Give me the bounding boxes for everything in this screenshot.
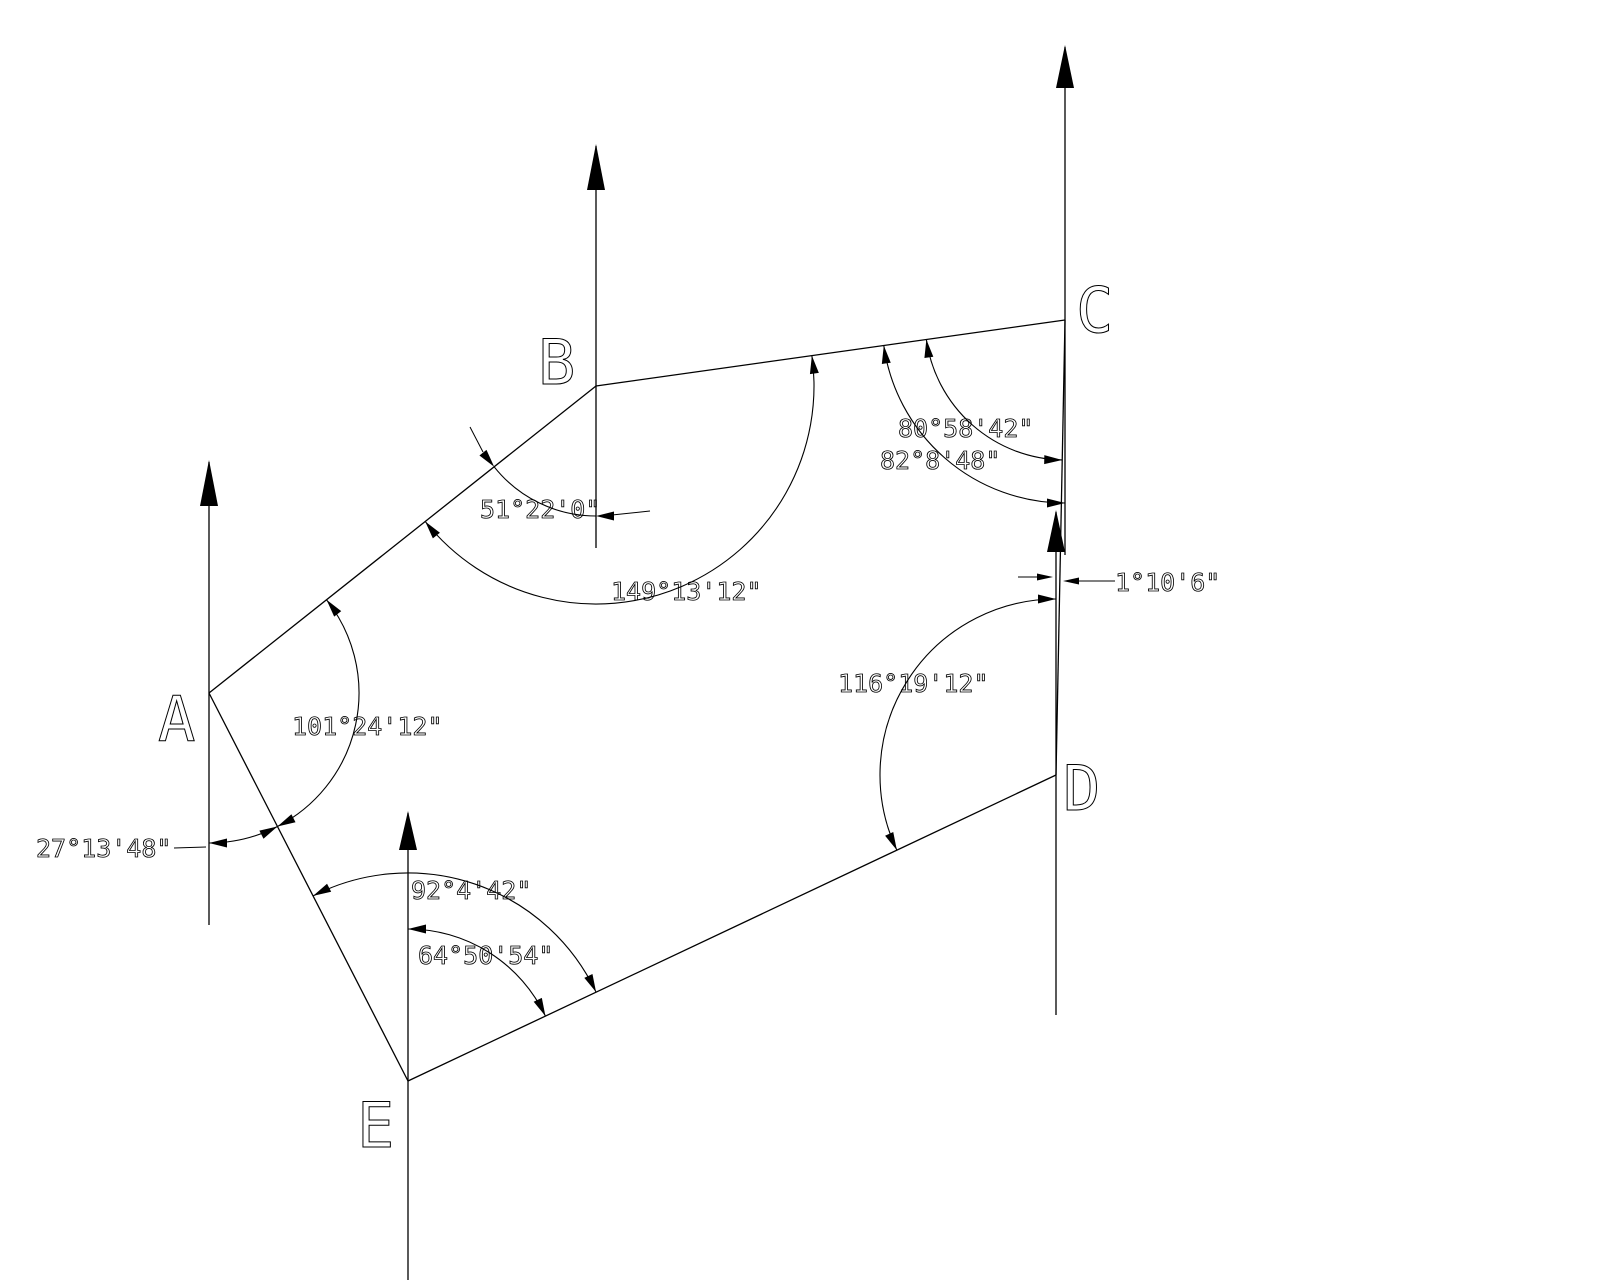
arrowhead-icon-angle-E-north-to-ED-start [408, 925, 426, 934]
edge-EA [209, 693, 408, 1081]
arrowhead-icon-angle-C-south-to-CB-end [882, 346, 891, 364]
arrowhead-icon-angle-C-CD-to-CB-start [1044, 455, 1062, 464]
arrowhead-icon-angle-E-EA-to-ED-end [584, 974, 596, 992]
vertex-label-B: B [538, 326, 575, 399]
north-arrow-icon-E [399, 811, 417, 850]
arrowhead-icon-angle-A-AE-to-south-start [259, 826, 277, 838]
label-angle-E-north-to-ED: 64°50'54" [418, 941, 553, 970]
label-angle-D-north-to-DC: 1°10'6" [1115, 568, 1220, 597]
label-angle-E-EA-to-ED: 92°4'42" [411, 876, 531, 905]
cad-viewport: 51°22'0"149°13'12"80°58'42"82°8'48"116°1… [0, 0, 1600, 1280]
arrowhead-icon-angle-B-north-to-BA-end [479, 450, 494, 467]
north-arrow-icon-A [200, 460, 218, 506]
arrowhead-icon-angle-B-BA-to-BC-start [810, 356, 819, 374]
traverse-diagram: 51°22'0"149°13'12"80°58'42"82°8'48"116°1… [0, 0, 1600, 1280]
arrowhead-icon-angle-A-AB-to-AE-start [327, 600, 342, 617]
label-angle-C-CD-to-CB: 80°58'42" [898, 414, 1033, 443]
label-angle-D-DE-to-north: 116°19'12" [838, 669, 989, 698]
arc-angle-B-BA-to-BC [425, 356, 814, 604]
arrowhead-icon-angle-A-AB-to-AE-end [277, 814, 295, 826]
vertex-label-A: A [158, 683, 195, 756]
vertex-label-D: D [1063, 752, 1100, 825]
edge-AB [209, 386, 596, 693]
arrowhead-icon-angle-E-north-to-ED-end [534, 998, 546, 1016]
arrowhead-icon-angle-E-EA-to-ED-start [313, 884, 331, 896]
label-angle-A-AB-to-AE: 101°24'12" [292, 712, 443, 741]
vertex-label-C: C [1076, 274, 1113, 347]
arrowhead-icon-angle-C-CD-to-CB-end [924, 340, 933, 358]
arrowhead-icon-angle-C-south-to-CB-start [1047, 499, 1065, 508]
arc-angle-D-DE-to-north [880, 599, 1056, 850]
label-27-leader [174, 847, 206, 848]
label-angle-C-south-to-CB: 82°8'48" [880, 446, 1000, 475]
tiny-angle-left-arrow-icon [1037, 574, 1053, 581]
label-51-leader [612, 511, 650, 515]
north-arrow-icon-B [587, 144, 605, 190]
edge-DE [408, 775, 1056, 1081]
north-arrow-icon-D [1047, 510, 1065, 552]
arc-51-outer-tail [470, 427, 483, 452]
vertex-label-E: E [357, 1089, 394, 1162]
label-angle-B-BA-to-BC: 149°13'12" [611, 577, 762, 606]
arrowhead-icon-angle-D-DE-to-north-end [1038, 595, 1056, 604]
arrowhead-icon-angle-D-DE-to-north-start [885, 832, 897, 850]
north-arrow-icon-C [1056, 45, 1074, 88]
arrowhead-icon-angle-A-AE-to-south-end [209, 839, 227, 848]
tiny-angle-right-arrow-icon [1063, 578, 1079, 585]
label-angle-B-north-to-BA: 51°22'0" [480, 495, 600, 524]
label-angle-A-AE-to-south: 27°13'48" [36, 834, 171, 863]
edge-BC [596, 320, 1065, 386]
